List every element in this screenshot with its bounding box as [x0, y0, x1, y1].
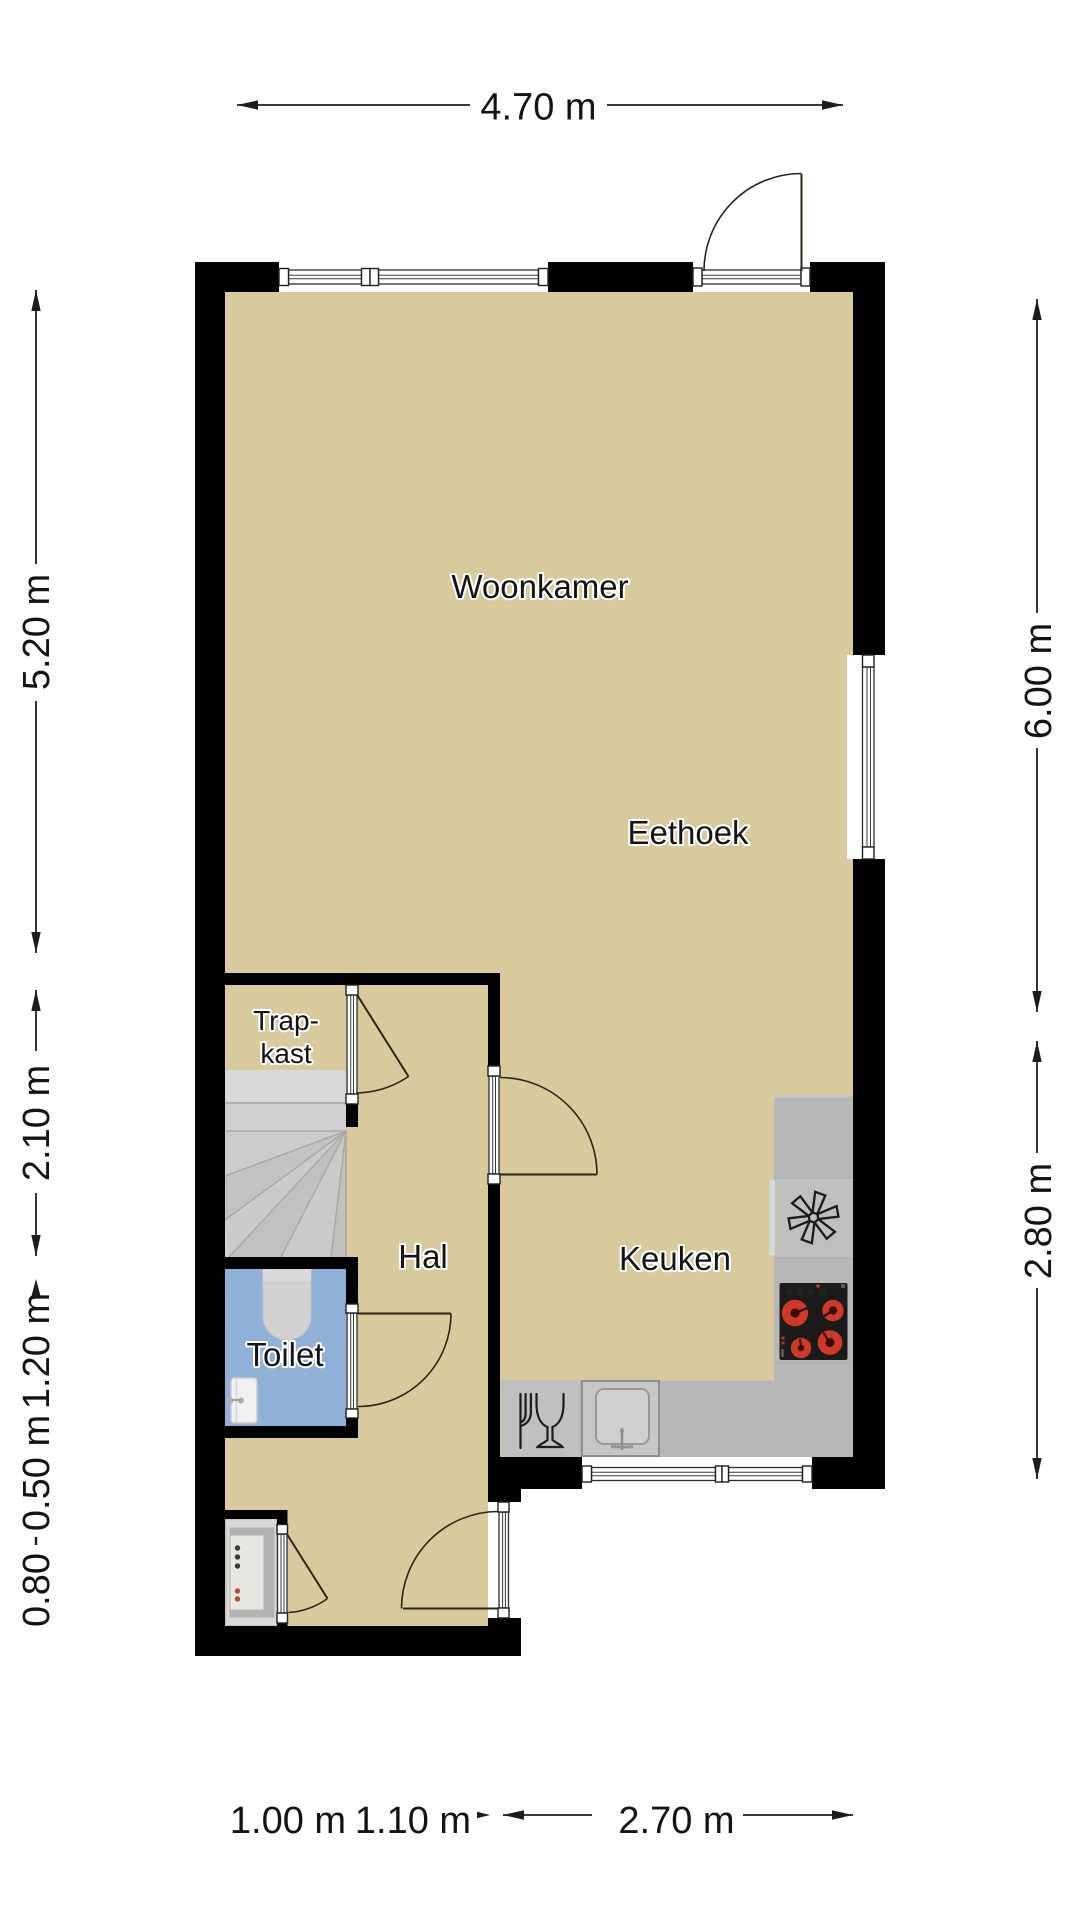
svg-text:1.00 m: 1.00 m: [230, 1800, 346, 1842]
svg-text:Eethoek: Eethoek: [627, 814, 749, 851]
svg-text:5.20 m: 5.20 m: [16, 574, 58, 690]
svg-text:2.10 m: 2.10 m: [16, 1065, 58, 1181]
svg-text:4.70 m: 4.70 m: [480, 87, 596, 129]
svg-text:0.80: 0.80: [16, 1553, 58, 1627]
svg-text:Woonkamer: Woonkamer: [451, 568, 628, 605]
svg-text:2.80 m: 2.80 m: [1018, 1163, 1060, 1279]
svg-text:0.50 m: 0.50 m: [16, 1415, 58, 1531]
svg-text:Trap-: Trap-: [253, 1005, 319, 1036]
svg-text:Toilet: Toilet: [246, 1336, 323, 1373]
svg-text:Hal: Hal: [398, 1238, 448, 1275]
svg-text:kast: kast: [260, 1038, 312, 1069]
svg-text:Keuken: Keuken: [619, 1240, 731, 1277]
svg-text:1.10 m: 1.10 m: [355, 1800, 471, 1842]
svg-text:2.70 m: 2.70 m: [618, 1800, 734, 1842]
svg-text:1.20 m: 1.20 m: [16, 1293, 58, 1409]
svg-text:6.00 m: 6.00 m: [1018, 623, 1060, 739]
